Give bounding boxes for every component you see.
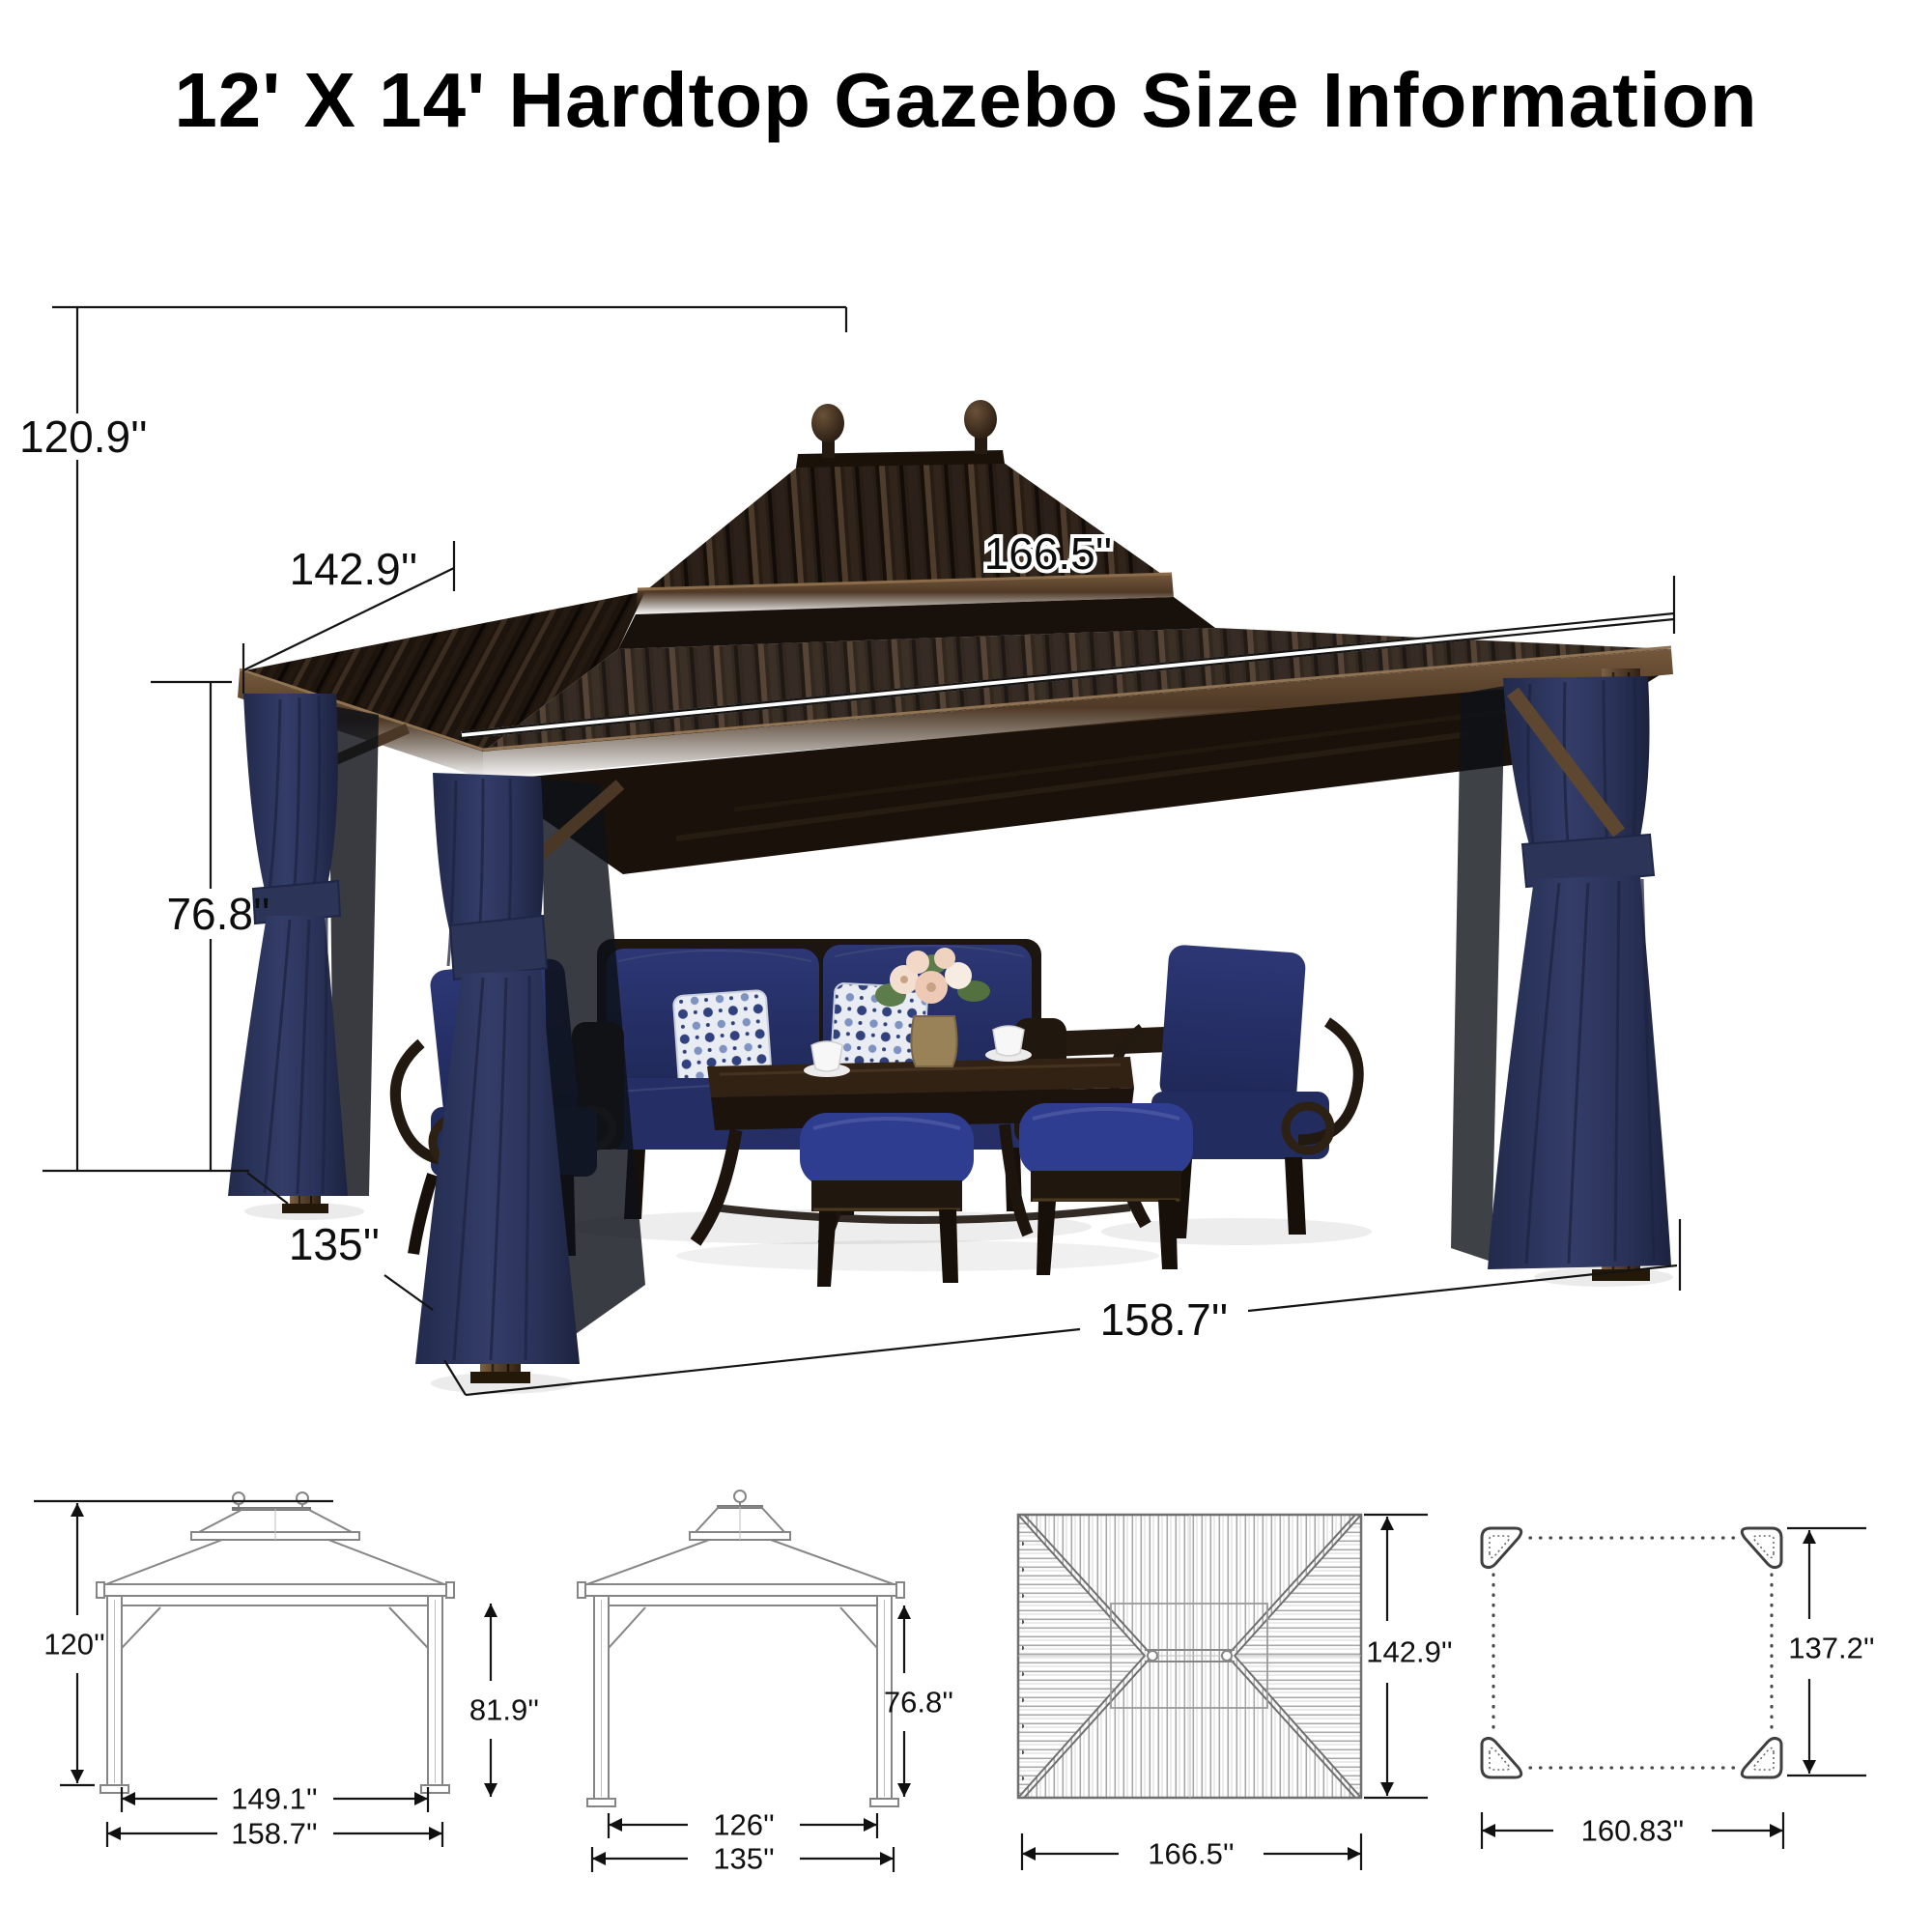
dim-roof-front-width: 166.5'' bbox=[984, 528, 1113, 579]
curtain-back-left bbox=[228, 694, 379, 1196]
front-view-diagram: 120'' 81.9'' 149.1'' 158.7'' bbox=[34, 1492, 539, 1851]
dim-front-inner-width: 149.1'' bbox=[231, 1782, 317, 1816]
dim-front-eave-height: 81.9'' bbox=[469, 1693, 539, 1727]
foot-pad-bottom-left bbox=[1482, 1738, 1521, 1777]
size-information-graphic: 120.9'' 142.9'' 166.5'' 76.8'' 135'' 158… bbox=[0, 0, 1932, 1932]
dim-front-total-height: 120'' bbox=[43, 1628, 105, 1662]
foot-pad-top-left bbox=[1482, 1528, 1521, 1568]
dim-front-outer-width: 158.7'' bbox=[231, 1817, 317, 1851]
base-plan-diagram: 137.2'' 160.83'' bbox=[1482, 1528, 1875, 1849]
dim-post-height: 76.8'' bbox=[166, 889, 270, 939]
dim-roofplan-width: 166.5'' bbox=[1148, 1837, 1234, 1871]
foot-pad-bottom-right bbox=[1742, 1738, 1781, 1777]
dim-total-height: 120.9'' bbox=[19, 412, 148, 462]
dim-baseplan-width: 160.83'' bbox=[1581, 1814, 1685, 1848]
side-view-dimensions: 76.8'' 126'' 135'' bbox=[592, 1605, 953, 1876]
foot-pad-top-right bbox=[1742, 1528, 1781, 1568]
dim-baseplan-depth: 137.2'' bbox=[1788, 1632, 1874, 1665]
dim-side-outer-depth: 135'' bbox=[713, 1842, 775, 1876]
dim-base-front-width: 158.7'' bbox=[1100, 1294, 1229, 1345]
finial-left bbox=[811, 404, 844, 442]
dim-side-post-height: 76.8'' bbox=[884, 1686, 953, 1719]
dim-side-inner-depth: 126'' bbox=[713, 1808, 775, 1842]
vase bbox=[911, 1016, 956, 1066]
dim-roofplan-depth: 142.9'' bbox=[1366, 1635, 1452, 1669]
dim-roof-side-depth: 142.9'' bbox=[290, 544, 418, 594]
finial-right bbox=[964, 400, 997, 439]
base-plan-dimensions: 137.2'' 160.83'' bbox=[1482, 1528, 1875, 1849]
curtain-tie-front-left bbox=[450, 916, 547, 980]
roof-plan-diagram: 142.9'' 166.5'' bbox=[1018, 1515, 1453, 1871]
dim-base-side-depth: 135'' bbox=[289, 1219, 380, 1269]
curtain-front-right bbox=[1488, 676, 1671, 1269]
side-view-diagram: 76.8'' 126'' 135'' bbox=[578, 1491, 953, 1876]
gazebo-photo: 120.9'' 142.9'' 166.5'' 76.8'' 135'' 158… bbox=[19, 307, 1680, 1395]
